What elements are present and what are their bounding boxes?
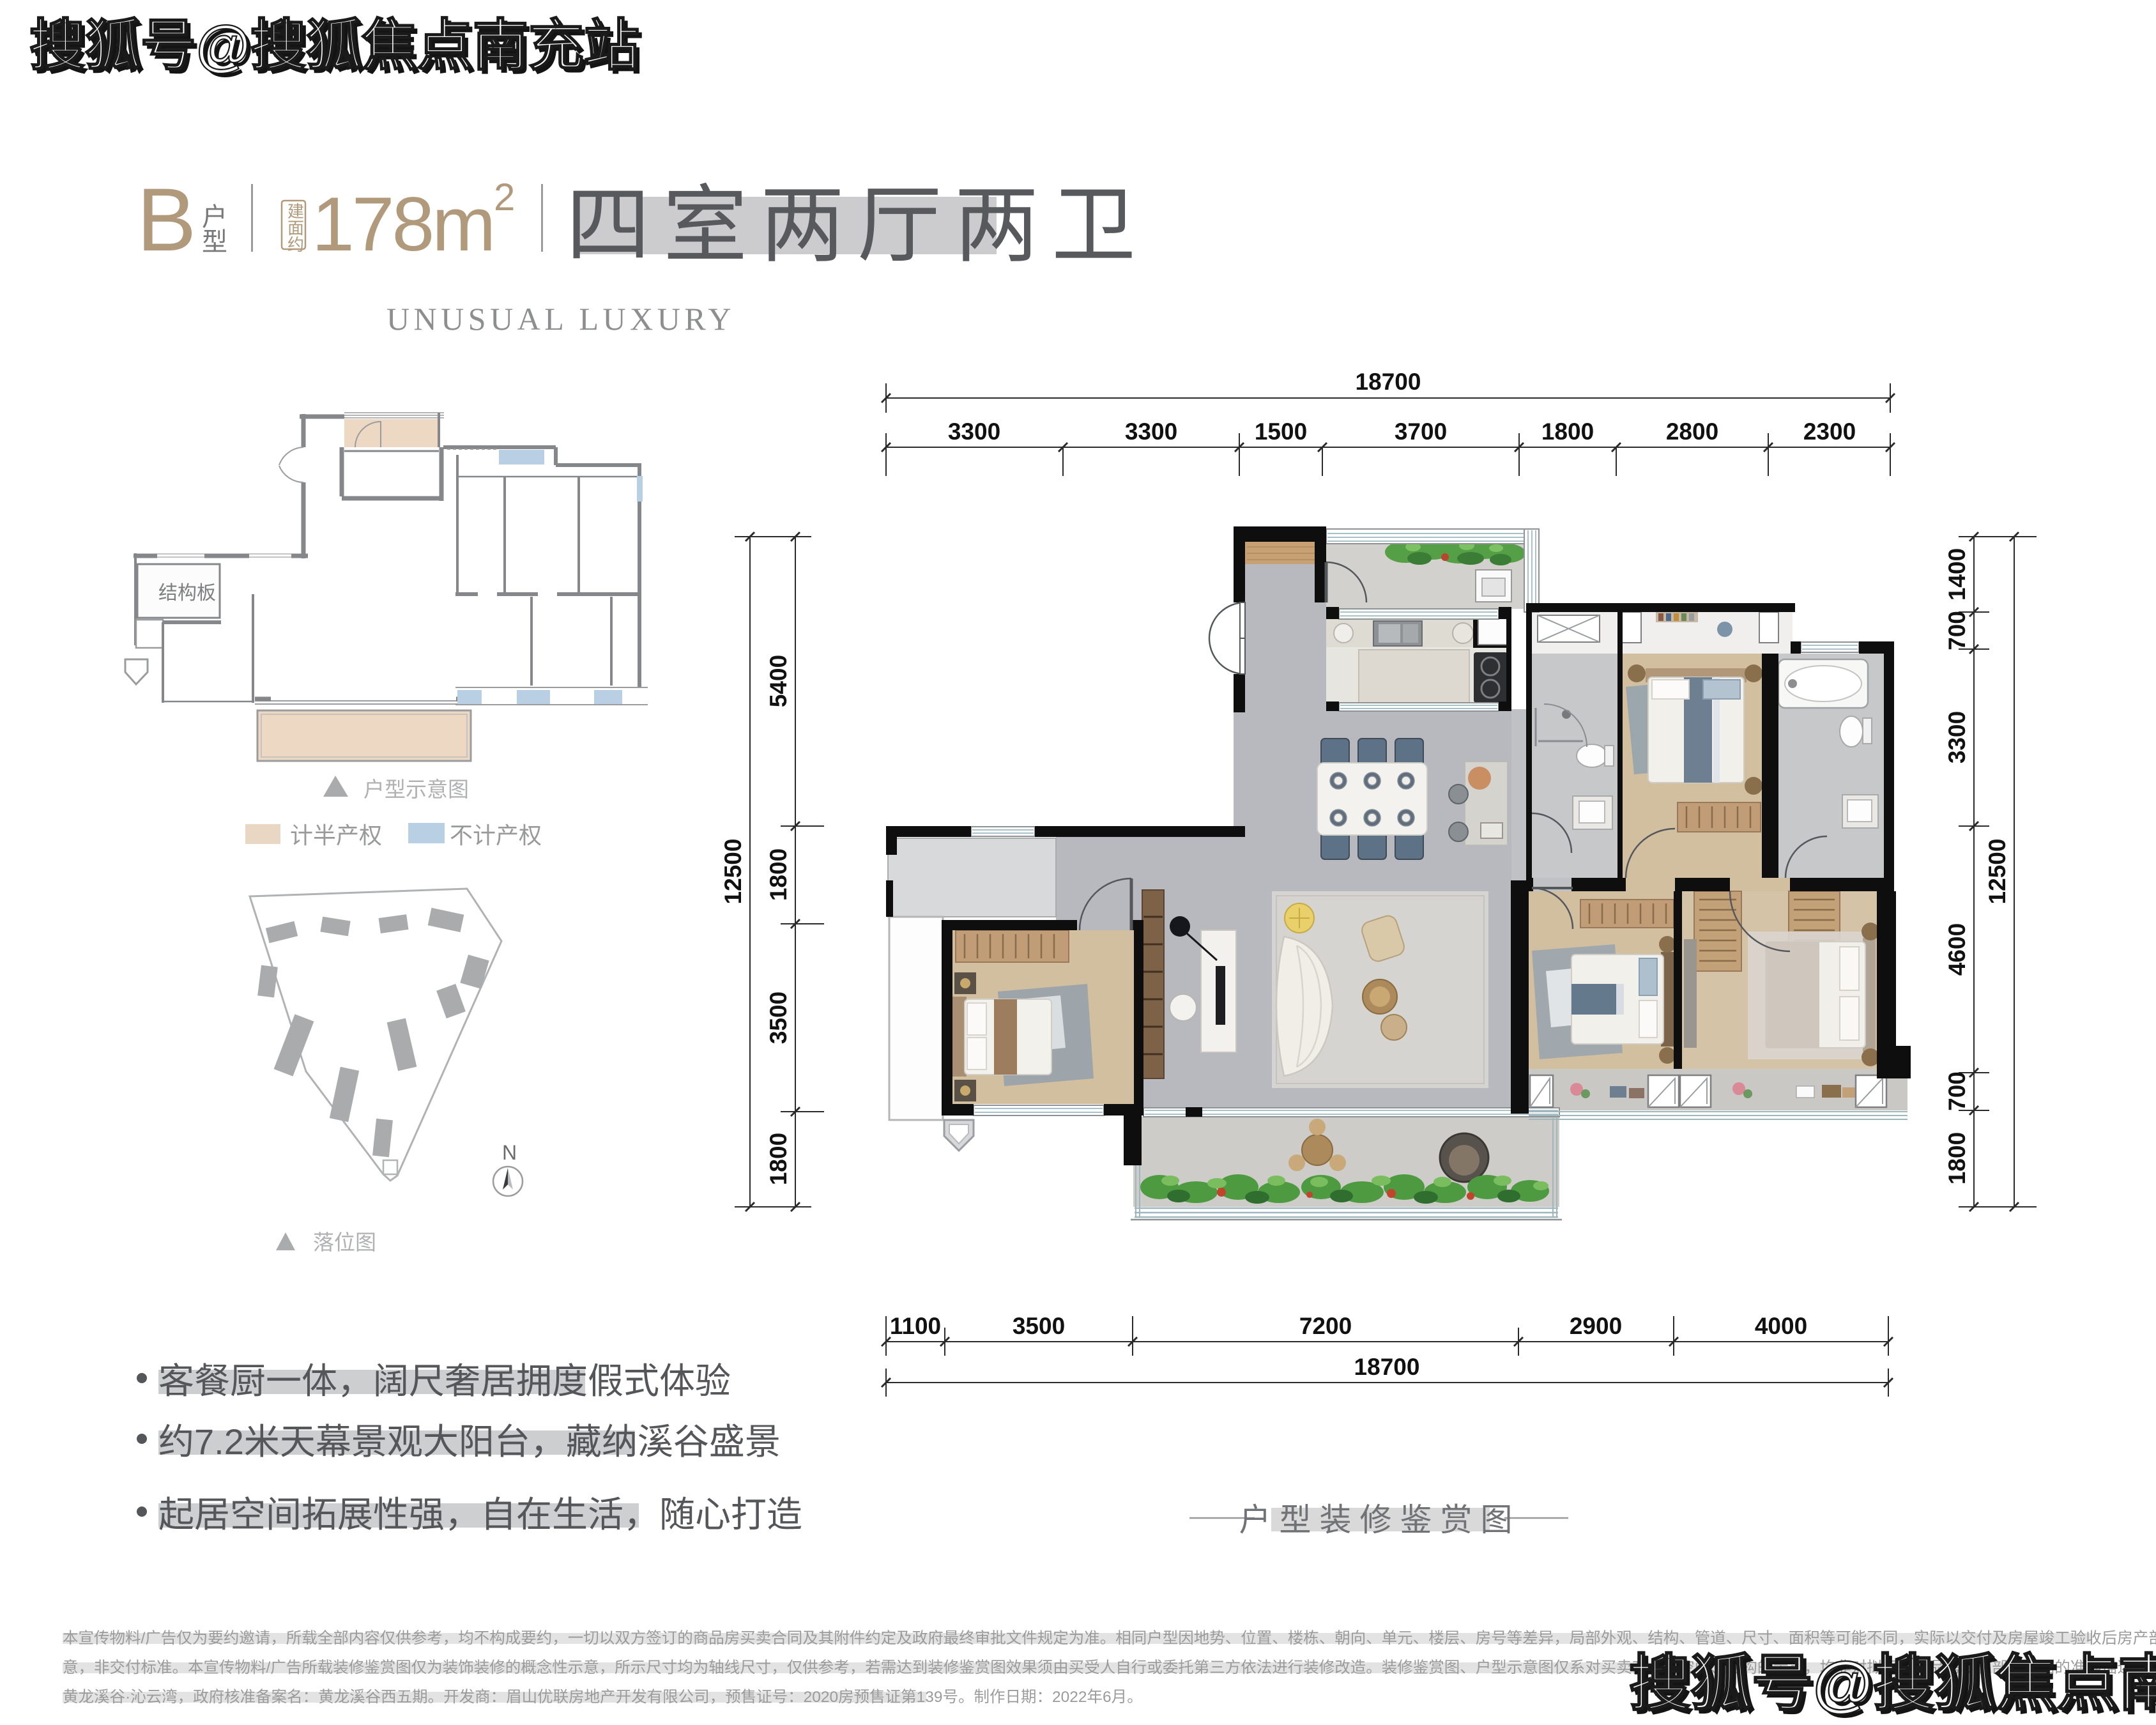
svg-text:1400: 1400 (1944, 548, 1970, 601)
svg-text:户型装修鉴赏图: 户型装修鉴赏图 (1239, 1502, 1521, 1538)
svg-text:178m: 178m (312, 181, 493, 267)
svg-text:3300: 3300 (948, 418, 1000, 445)
svg-text:黄龙溪谷·沁云湾，政府核准备案名：黄龙溪谷西五期。开发商：眉: 黄龙溪谷·沁云湾，政府核准备案名：黄龙溪谷西五期。开发商：眉山优联房地产开发有限… (63, 1688, 1143, 1706)
svg-text:2900: 2900 (1570, 1313, 1622, 1339)
svg-text:1100: 1100 (890, 1313, 941, 1339)
svg-text:1800: 1800 (1541, 418, 1594, 445)
svg-text:12500: 12500 (1984, 839, 2010, 905)
svg-text:5400: 5400 (765, 655, 791, 707)
svg-text:约: 约 (287, 235, 304, 254)
svg-text:户: 户 (202, 203, 227, 231)
svg-text:四室两厅两卫: 四室两厅两卫 (566, 178, 1149, 272)
svg-text:2800: 2800 (1666, 418, 1718, 445)
svg-text:1800: 1800 (765, 848, 791, 901)
svg-text:7200: 7200 (1299, 1313, 1352, 1339)
svg-text:4000: 4000 (1755, 1313, 1807, 1339)
svg-text:700: 700 (1944, 1071, 1970, 1111)
svg-text:1800: 1800 (765, 1133, 791, 1185)
svg-text:12500: 12500 (720, 839, 746, 905)
svg-text:户型示意图: 户型示意图 (363, 778, 469, 801)
svg-text:落位图: 落位图 (313, 1230, 376, 1254)
svg-text:搜狐号@搜狐焦点南充站: 搜狐号@搜狐焦点南充站 (29, 15, 639, 77)
svg-text:3300: 3300 (1944, 711, 1970, 763)
svg-text:3500: 3500 (1013, 1313, 1065, 1339)
svg-text:UNUSUAL LUXURY: UNUSUAL LUXURY (386, 301, 735, 337)
svg-text:本宣传物料/广告仅为要约邀请，所载全部内容仅供参考，均不构成: 本宣传物料/广告仅为要约邀请，所载全部内容仅供参考，均不构成要约，一切以双方签订… (63, 1629, 2156, 1647)
svg-text:1500: 1500 (1255, 418, 1307, 445)
svg-text:2300: 2300 (1803, 418, 1856, 445)
svg-text:结构板: 结构板 (158, 583, 216, 604)
svg-text:约7.2米天幕景观大阳台，藏纳溪谷盛景: 约7.2米天幕景观大阳台，藏纳溪谷盛景 (158, 1422, 781, 1462)
svg-text:计半产权: 计半产权 (290, 822, 382, 848)
svg-text:3700: 3700 (1395, 418, 1447, 445)
svg-text:700: 700 (1944, 611, 1970, 650)
svg-text:型: 型 (202, 228, 227, 256)
svg-text:搜狐号@搜狐焦点南充站: 搜狐号@搜狐焦点南充站 (1629, 1650, 2156, 1718)
svg-text:3500: 3500 (765, 992, 791, 1044)
svg-text:B: B (137, 169, 196, 270)
svg-text:客餐厨一体，阔尺奢居拥度假式体验: 客餐厨一体，阔尺奢居拥度假式体验 (158, 1361, 731, 1401)
svg-text:起居空间拓展性强，自在生活，随心打造: 起居空间拓展性强，自在生活，随心打造 (158, 1494, 802, 1535)
svg-text:2: 2 (494, 176, 515, 218)
svg-text:4600: 4600 (1944, 923, 1970, 976)
svg-text:1800: 1800 (1944, 1132, 1970, 1184)
svg-text:3300: 3300 (1125, 418, 1177, 445)
svg-text:N: N (502, 1141, 517, 1164)
svg-text:18700: 18700 (1354, 1354, 1420, 1380)
svg-text:不计产权: 不计产权 (450, 822, 542, 848)
svg-text:18700: 18700 (1356, 369, 1421, 395)
